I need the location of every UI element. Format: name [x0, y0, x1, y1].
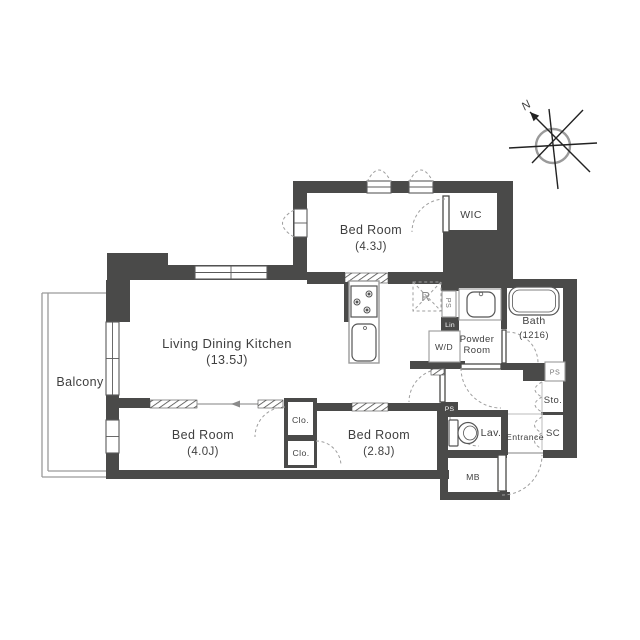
room-label-closet-lower: Clo.: [292, 448, 309, 458]
room-label-ldk: Living Dining Kitchen: [162, 336, 292, 351]
label-pipe-space-bath: PS: [550, 368, 560, 377]
label-refrigerator: R: [421, 290, 430, 304]
toilet-icon: [449, 420, 478, 446]
washbasin-icon: [459, 289, 501, 320]
room-label-bath: Bath: [522, 315, 545, 327]
room-label-balcony: Balcony: [56, 375, 104, 389]
room-label-bedroom40: Bed Room: [172, 428, 234, 442]
room-label-powder-2: Room: [464, 345, 491, 356]
room-size-bedroom28: (2.8J): [363, 446, 395, 458]
room-size-bedroom43: (4.3J): [355, 241, 387, 253]
room-label-storage: Sto.: [544, 395, 563, 406]
room-label-shoe-closet: SC: [546, 428, 560, 439]
compass-north-label: N: [520, 98, 534, 113]
room-label-bedroom43: Bed Room: [340, 223, 402, 237]
floorplan-drawing: N Living Dining Kitchen (13.5J) Bed Room…: [0, 0, 640, 640]
room-label-entrance: Entrance: [506, 432, 544, 442]
room-label-lavatory: Lav.: [481, 427, 502, 439]
sliding-partition: [150, 400, 283, 408]
room-size-bedroom40: (4.0J): [187, 446, 219, 458]
gas-stove-icon: [351, 286, 377, 317]
kitchen-counter: [349, 281, 379, 363]
room-label-meter-box: MB: [466, 472, 480, 482]
label-linen: Lin: [445, 322, 455, 329]
room-label-closet-upper: Clo.: [292, 415, 309, 425]
label-pipe-space-kitchen: PS: [444, 298, 453, 308]
room-size-ldk: (13.5J): [206, 353, 248, 367]
bathtub-icon: [509, 287, 559, 315]
sliding-door-bedroom28: [352, 403, 388, 411]
room-label-bedroom28: Bed Room: [348, 428, 410, 442]
room-label-powder-1: Powder: [460, 334, 495, 345]
label-washer-dryer: W/D: [435, 342, 453, 352]
label-pipe-space-hall: PS: [445, 406, 455, 413]
floor-edges: [508, 382, 543, 453]
room-label-wic: WIC: [460, 209, 482, 221]
room-size-bath: (1216): [519, 330, 549, 341]
compass-rose: N: [509, 98, 597, 189]
floorplan-page: N Living Dining Kitchen (13.5J) Bed Room…: [0, 0, 640, 640]
